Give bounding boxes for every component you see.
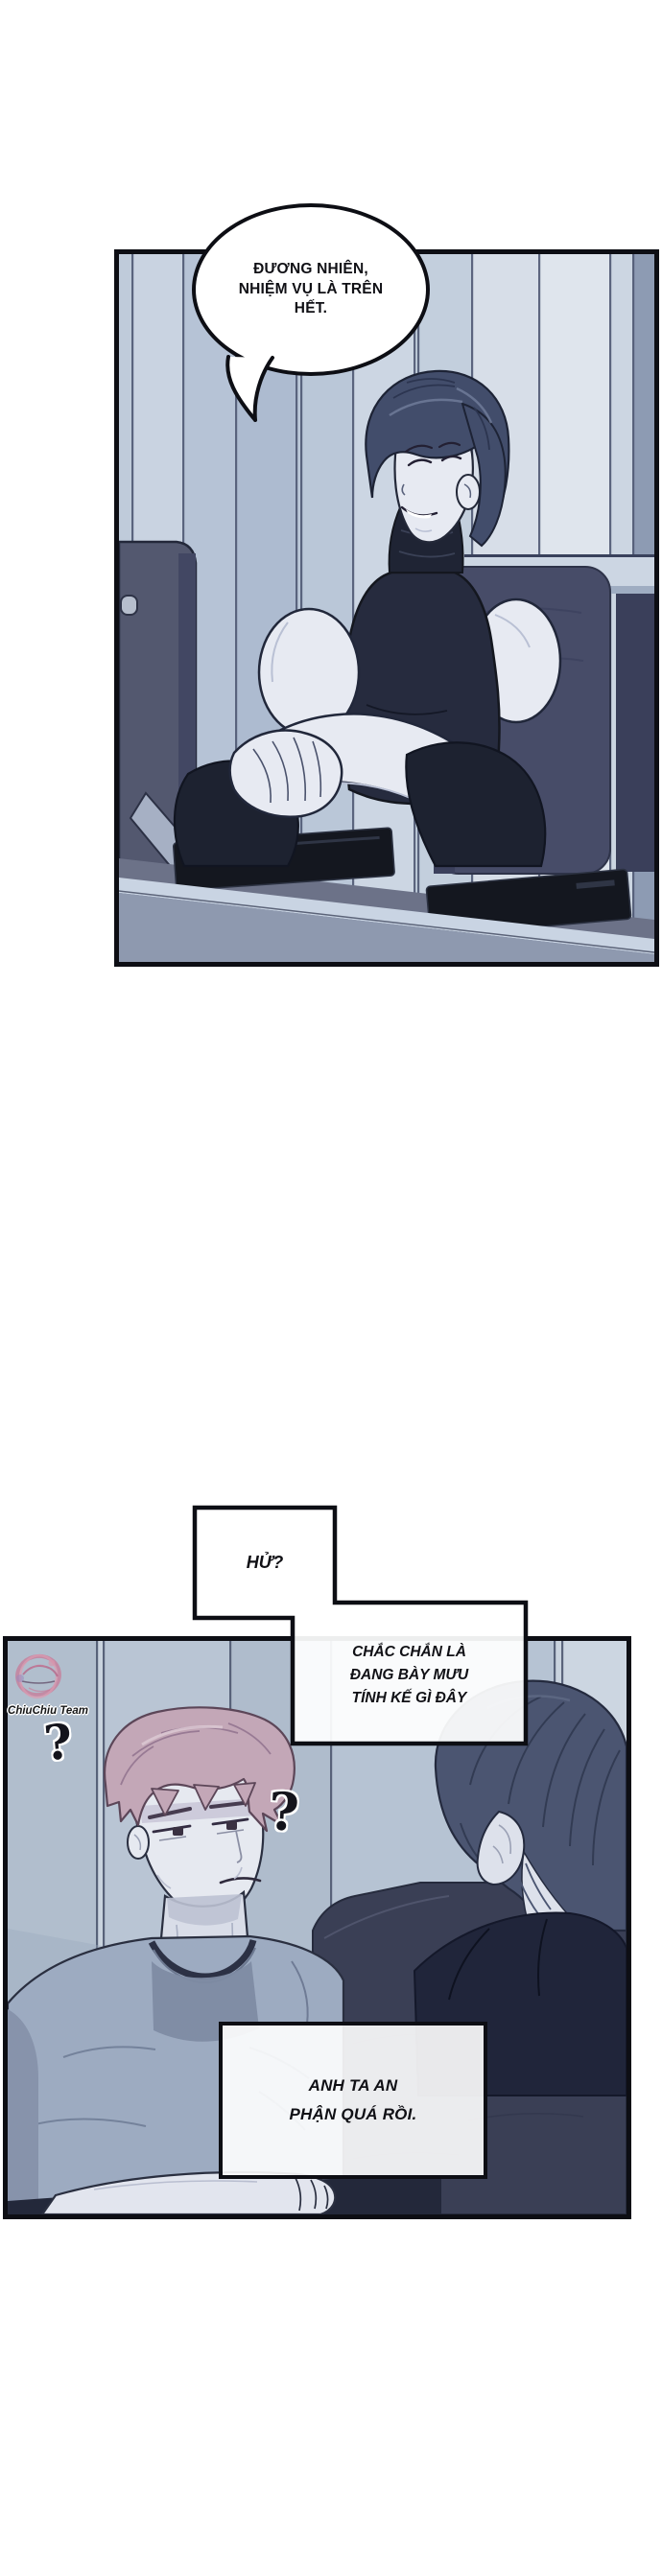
speech-bubble-mission-first-text: ĐƯƠNG NHIÊN, NHIỆM VỤ LÀ TRÊN HẾT. [239,260,383,319]
speech-bubble-mission-first: ĐƯƠNG NHIÊN, NHIỆM VỤ LÀ TRÊN HẾT. [192,203,430,376]
bubble-resigned: ANH TA AN PHẬN QUÁ RỒI. [219,2022,487,2179]
comic-page: ĐƯƠNG NHIÊN, NHIỆM VỤ LÀ TRÊN HẾT. [0,0,662,2576]
panel-office-man [114,249,659,967]
question-mark-small: ? [42,1718,75,1768]
bubble-hu-text: HỬ? [195,1510,335,1615]
translator-watermark-logo [12,1650,65,1703]
speech-bubble-tail [215,355,284,424]
question-mark-large: ? [268,1785,300,1838]
bubble-resigned-text: ANH TA AN PHẬN QUÁ RỒI. [290,2072,417,2129]
bubble-scheme-text: CHẮC CHẮN LÀ ĐANG BÀY MƯU TÍNH KẾ GÌ ĐÂY [293,1609,526,1742]
translator-watermark-text: ChiuChiu Team [0,1705,96,1717]
panel-1-artwork [119,254,654,962]
